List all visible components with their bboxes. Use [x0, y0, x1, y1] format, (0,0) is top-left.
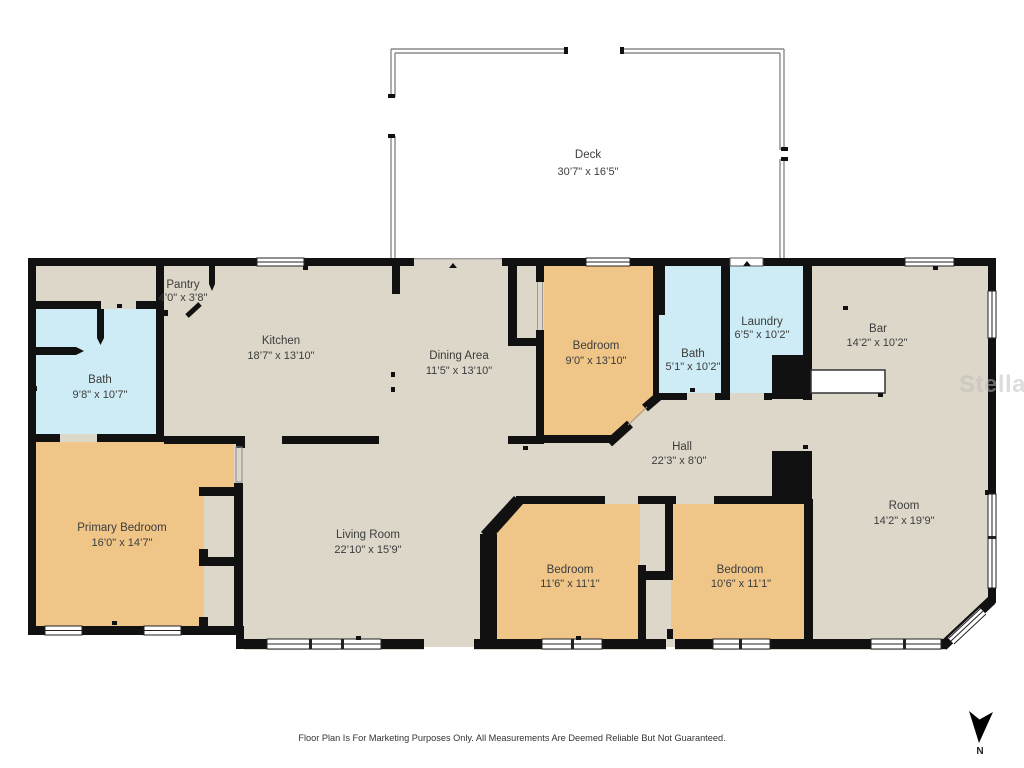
svg-text:N: N — [976, 746, 983, 757]
svg-text:4’0" x 3’8": 4’0" x 3’8" — [159, 292, 208, 304]
svg-text:10’6" x 11’1": 10’6" x 11’1" — [711, 578, 771, 590]
svg-text:Bedroom: Bedroom — [547, 564, 594, 576]
svg-text:Floor Plan Is For Marketing Pu: Floor Plan Is For Marketing Purposes Onl… — [298, 733, 725, 743]
svg-text:6’5" x 10’2": 6’5" x 10’2" — [735, 329, 790, 341]
svg-text:Pantry: Pantry — [166, 279, 199, 291]
svg-text:9’8" x 10’7": 9’8" x 10’7" — [73, 389, 128, 401]
svg-text:StellarMLS: StellarMLS — [959, 371, 1024, 398]
svg-text:Living Room: Living Room — [336, 529, 400, 541]
svg-text:Bedroom: Bedroom — [717, 564, 764, 576]
svg-text:Bath: Bath — [88, 374, 112, 386]
svg-text:14’2" x 19’9": 14’2" x 19’9" — [873, 515, 934, 527]
svg-text:9’0" x 13’10": 9’0" x 13’10" — [565, 355, 626, 367]
svg-text:14’2" x 10’2": 14’2" x 10’2" — [846, 337, 907, 349]
svg-text:Room: Room — [889, 500, 920, 512]
svg-text:Primary Bedroom: Primary Bedroom — [77, 522, 166, 534]
svg-text:Kitchen: Kitchen — [262, 335, 300, 347]
svg-text:5’1" x 10’2": 5’1" x 10’2" — [666, 361, 721, 373]
svg-text:Bar: Bar — [869, 323, 887, 335]
svg-text:11’5" x 13’10": 11’5" x 13’10" — [426, 365, 492, 377]
svg-text:22’10" x 15’9": 22’10" x 15’9" — [334, 544, 401, 556]
svg-text:Bedroom: Bedroom — [573, 340, 620, 352]
svg-text:Deck: Deck — [575, 149, 601, 161]
svg-text:Bath: Bath — [681, 348, 705, 360]
svg-text:11’6" x 11’1": 11’6" x 11’1" — [540, 578, 599, 590]
svg-text:22’3" x 8’0": 22’3" x 8’0" — [652, 455, 707, 467]
svg-text:Dining Area: Dining Area — [429, 350, 489, 362]
svg-text:16’0" x 14’7": 16’0" x 14’7" — [91, 537, 152, 549]
svg-text:18’7" x 13’10": 18’7" x 13’10" — [247, 350, 314, 362]
svg-text:Hall: Hall — [672, 441, 692, 453]
svg-text:Laundry: Laundry — [741, 316, 783, 328]
svg-text:30’7" x 16’5": 30’7" x 16’5" — [557, 166, 618, 178]
